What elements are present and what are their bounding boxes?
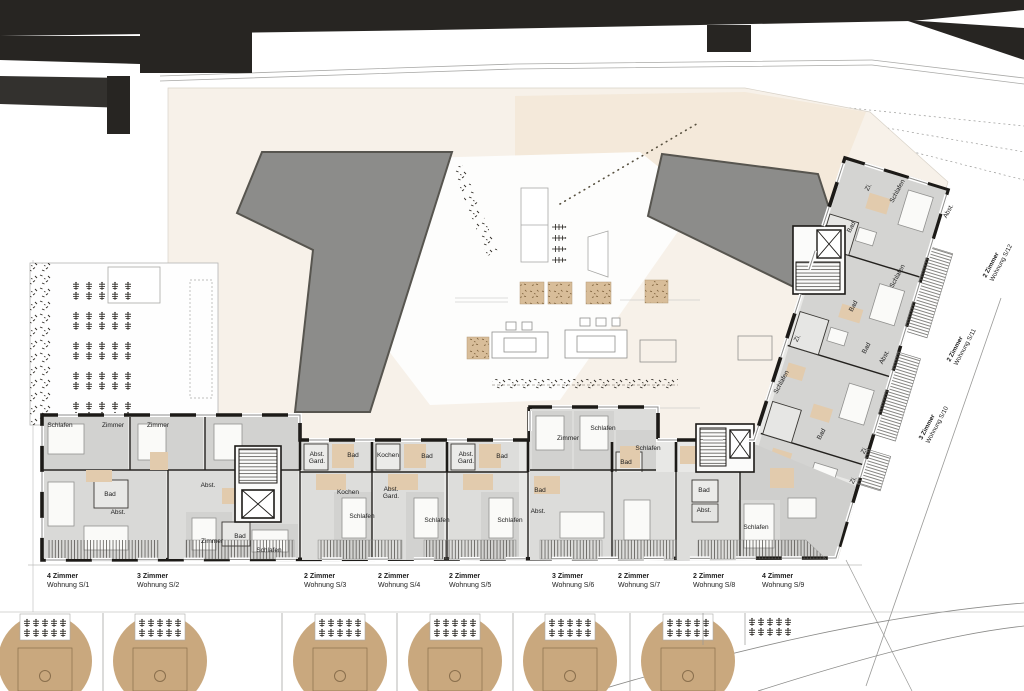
courtyard-structure: [588, 231, 608, 277]
tree: [641, 614, 735, 691]
garden-structure: [108, 267, 160, 303]
rotated-apartment-label: 2 ZimmerWohnung S/11: [946, 324, 978, 367]
room-label: Zimmer: [147, 422, 170, 429]
room-label: Abst.: [310, 451, 325, 458]
room-label: Abst.: [459, 451, 474, 458]
room-label: Schlafen: [424, 517, 450, 524]
apartment-unit-label: Wohnung S/9: [762, 582, 804, 589]
tree: [408, 614, 502, 691]
apartment-rooms-label: 2 Zimmer: [693, 573, 724, 580]
room-label: Schlafen: [497, 517, 523, 524]
room-label: Bad: [620, 459, 632, 466]
room-label: Zimmer: [102, 422, 125, 429]
apartment-rooms-label: 4 Zimmer: [762, 573, 793, 580]
room-label: Gard.: [309, 458, 325, 465]
room-label: Schlafen: [256, 547, 282, 554]
apartment-unit-label: Wohnung S/8: [693, 582, 735, 589]
room-label: Gard.: [458, 458, 474, 465]
room-label: Bad: [421, 453, 433, 460]
site-plan-svg: SchlafenZimmerZimmerBadAbst.Abst.ZimmerB…: [0, 0, 1024, 691]
garden: [30, 263, 218, 425]
room-label: Bad: [104, 491, 116, 498]
apartment-unit-label: Wohnung S/3: [304, 582, 346, 589]
room-label: Bad: [496, 453, 508, 460]
apartment-rooms-label: 2 Zimmer: [304, 573, 335, 580]
apartment-unit-label: Wohnung S/1: [47, 582, 89, 589]
room-label: Schlafen: [635, 445, 661, 452]
apartment-unit-label: Wohnung S/6: [552, 582, 594, 589]
apartment-rooms-label: 2 Zimmer: [449, 573, 480, 580]
room-label: Bad: [698, 487, 710, 494]
hedge-strip: [30, 263, 52, 425]
apartment-unit-label: Wohnung S/5: [449, 582, 491, 589]
apartment-rooms-label: 3 Zimmer: [137, 573, 168, 580]
apartment-rooms-label: 2 Zimmer: [618, 573, 649, 580]
room-label: Abst.: [111, 509, 126, 516]
room-label: Bad: [347, 452, 359, 459]
room-label: Abst.: [201, 482, 216, 489]
stair-core-b: [696, 424, 754, 472]
apartment-unit-label: Wohnung S/2: [137, 582, 179, 589]
plant-group: [749, 618, 791, 636]
room-label: Zimmer: [557, 435, 580, 442]
room-label: Bad: [234, 533, 246, 540]
room-label: Kochen: [377, 452, 399, 459]
apartment-rooms-label: 4 Zimmer: [47, 573, 78, 580]
stair-core-a: [235, 446, 281, 522]
room-label: Abst.: [697, 507, 712, 514]
site-plan-page: SchlafenZimmerZimmerBadAbst.Abst.ZimmerB…: [0, 0, 1024, 691]
room-label: Abst.: [531, 508, 546, 515]
apartment-unit-label: Wohnung S/7: [618, 582, 660, 589]
tree: [0, 614, 92, 691]
apartment-labels: 4 ZimmerWohnung S/13 ZimmerWohnung S/22 …: [47, 573, 804, 589]
room-label: Bad: [534, 487, 546, 494]
room-label: Schlafen: [349, 513, 375, 520]
apartment-rooms-label: 2 Zimmer: [378, 573, 409, 580]
apartment-unit-label: Wohnung S/4: [378, 582, 420, 589]
room-label: Kochen: [337, 489, 359, 496]
tree: [113, 614, 207, 691]
rotated-apartment-label: 3 ZimmerWohnung S/10: [918, 401, 951, 445]
room-label: Schlafen: [590, 425, 616, 432]
rotated-apartment-label: 2 ZimmerWohnung S/12: [982, 239, 1015, 283]
room-label: Zimmer: [201, 538, 224, 545]
room-label: Gard.: [383, 493, 399, 500]
room-label: Schlafen: [47, 422, 73, 429]
tree: [523, 614, 617, 691]
stair-core-c: [793, 226, 845, 294]
tree: [293, 614, 387, 691]
apartment-rooms-label: 3 Zimmer: [552, 573, 583, 580]
street-trees: [0, 614, 791, 691]
room-label: Abst.: [384, 486, 399, 493]
room-label: Schlafen: [743, 524, 769, 531]
